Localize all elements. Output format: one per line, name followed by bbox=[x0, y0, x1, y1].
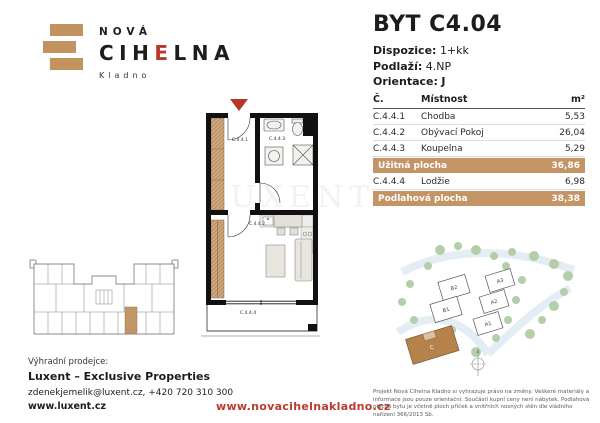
table-row: C.4.4.3 Koupelna 5,29 bbox=[373, 141, 585, 157]
sofa bbox=[295, 239, 312, 281]
seller-contact-link[interactable]: zdenekjemelik@luxent.cz, +420 720 310 30… bbox=[28, 387, 233, 399]
room-label-lodzie: C.4.4.4 bbox=[240, 310, 256, 316]
room-label-koupelna: C.4.4.3 bbox=[269, 136, 285, 142]
floor-area-band: Podlahová plocha 38,38 bbox=[373, 191, 585, 206]
coffee-table bbox=[266, 245, 285, 277]
table-row: C.4.4.2 Obývací Pokoj 26,04 bbox=[373, 125, 585, 141]
wardrobe-living bbox=[211, 220, 224, 298]
site-building-a3: A3 bbox=[485, 269, 515, 293]
usable-area-band: Užitná plocha 36,86 bbox=[373, 158, 585, 173]
site-building-c-highlight: C bbox=[406, 326, 460, 365]
wardrobe-hall bbox=[211, 118, 224, 210]
brand-top-line: NOVÁ bbox=[99, 26, 235, 38]
brand-city: Kladno bbox=[99, 71, 235, 80]
site-building-a2: A2 bbox=[479, 290, 509, 314]
brand-red-e: E bbox=[154, 41, 173, 65]
dining-table bbox=[274, 214, 302, 235]
floor-key-plan bbox=[26, 250, 182, 358]
washing-machine-icon bbox=[265, 147, 283, 165]
area-table: Č. Místnost m² C.4.4.1 Chodba 5,53 C.4.4… bbox=[373, 92, 585, 207]
disclaimer-text: Projekt Nová Cihelna Kladno si vyhrazuje… bbox=[373, 389, 595, 420]
unit-specs: Dispozice: 1+kk Podlaží: 4.NP Orientace:… bbox=[373, 43, 469, 90]
brand-logo: NOVÁ CIHELNA Kladno bbox=[43, 24, 235, 80]
site-building-a1: A1 bbox=[473, 312, 503, 336]
loggia bbox=[201, 305, 320, 336]
window bbox=[226, 300, 296, 305]
entrance-arrow-icon bbox=[230, 99, 248, 111]
seller-block: Výhradní prodejce: Luxent – Exclusive Pr… bbox=[28, 357, 233, 414]
spec-orientace: Orientace: J bbox=[373, 74, 469, 90]
brick-logo-icon bbox=[43, 24, 83, 72]
brand-name: CIHELNA bbox=[99, 41, 235, 65]
table-row: C.4.4.4 Lodžie 6,98 bbox=[373, 174, 585, 190]
watermark-text: LUXENT bbox=[206, 180, 370, 215]
seller-label: Výhradní prodejce: bbox=[28, 357, 233, 368]
unit-title: BYT C4.04 bbox=[373, 12, 502, 37]
project-website-link[interactable]: www.novacihelnakladno.cz bbox=[216, 400, 391, 413]
highlighted-unit bbox=[125, 307, 137, 334]
site-building-b1: B1 bbox=[430, 296, 462, 322]
brand-wordmark: NOVÁ CIHELNA Kladno bbox=[99, 24, 235, 80]
apartment-card-page: NOVÁ CIHELNA Kladno BYT C4.04 Dispozice:… bbox=[0, 0, 600, 423]
site-plan: B2 B1 A3 A2 A1 C bbox=[388, 236, 594, 388]
spec-dispozice: Dispozice: 1+kk bbox=[373, 43, 469, 59]
room-label-chodba: C.4.4.1 bbox=[232, 137, 248, 143]
apartment-floor-plan: LUXENT bbox=[198, 93, 370, 345]
room-label-obyvaci-pokoj: C.4.4.2 bbox=[249, 221, 265, 227]
shaft bbox=[303, 118, 313, 136]
site-building-b2: B2 bbox=[438, 274, 470, 300]
seller-name: Luxent – Exclusive Properties bbox=[28, 370, 233, 385]
table-header: Č. Místnost m² bbox=[373, 92, 585, 109]
table-row: C.4.4.1 Chodba 5,53 bbox=[373, 109, 585, 125]
seller-website-link[interactable]: www.luxent.cz bbox=[28, 401, 233, 414]
spec-podlazi: Podlaží: 4.NP bbox=[373, 59, 469, 75]
